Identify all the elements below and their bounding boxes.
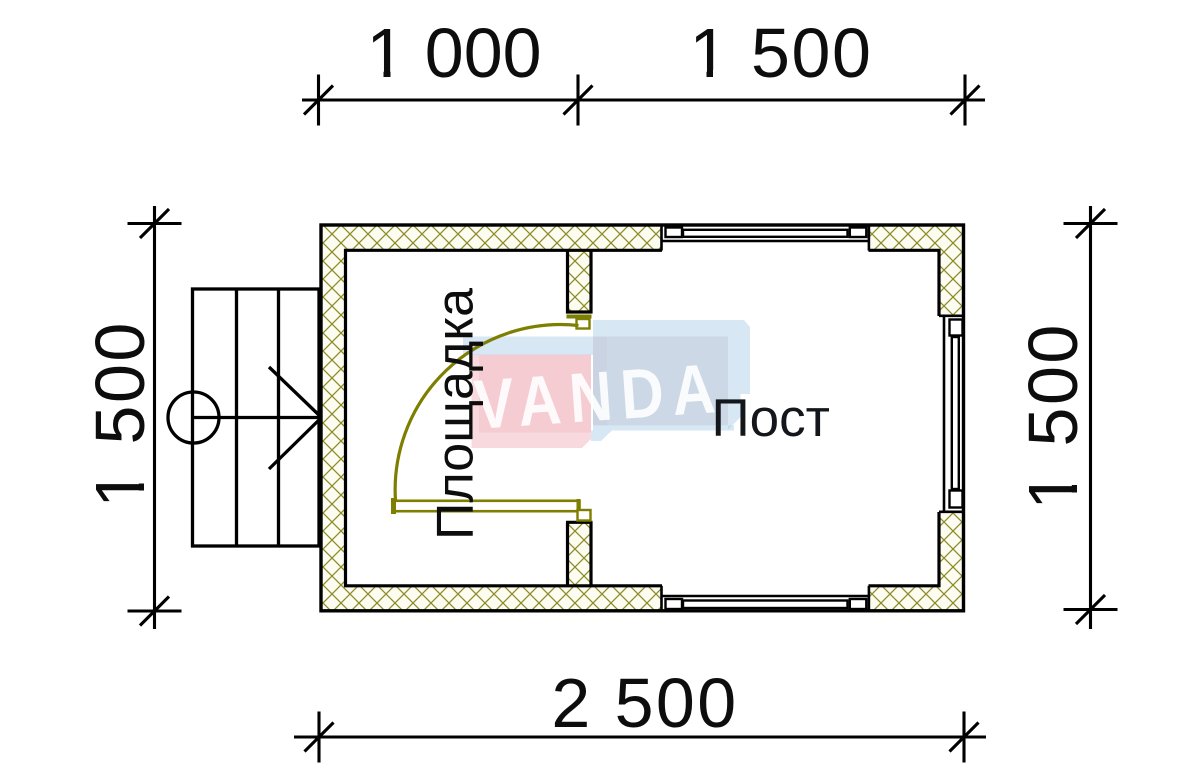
- svg-text:1 000: 1 000: [366, 14, 541, 92]
- svg-text:1 500: 1 500: [81, 320, 159, 508]
- svg-text:Площадка: Площадка: [427, 288, 485, 540]
- svg-text:2 500: 2 500: [551, 664, 738, 742]
- svg-text:Пост: Пост: [712, 389, 830, 448]
- svg-text:1 500: 1 500: [1014, 322, 1092, 510]
- svg-text:1 500: 1 500: [689, 14, 872, 92]
